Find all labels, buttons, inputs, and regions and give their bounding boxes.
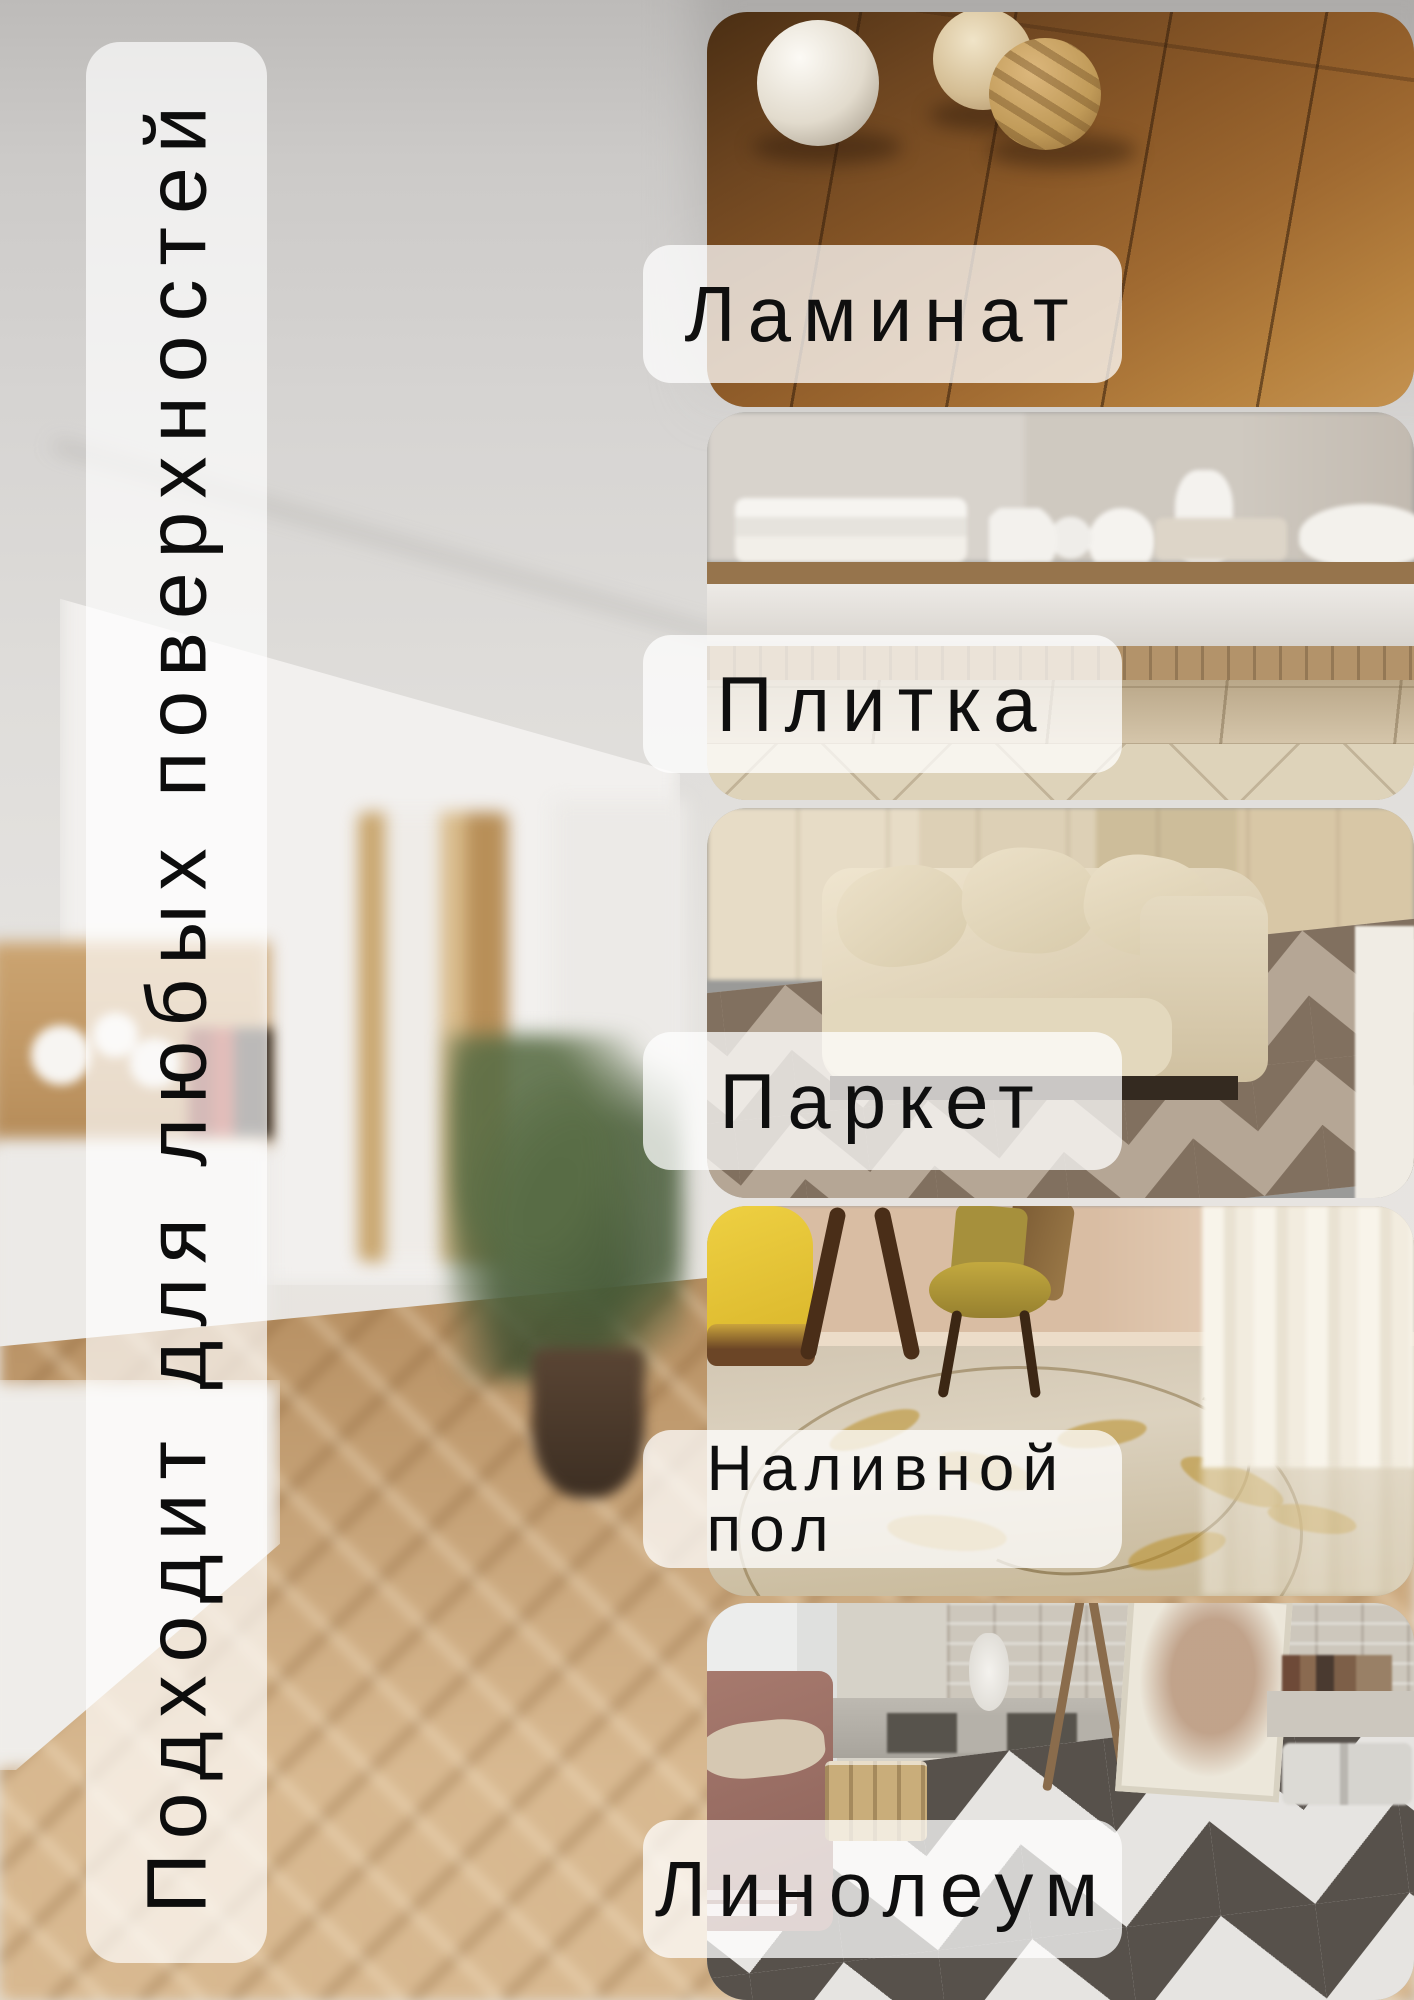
label-tile: Плитка [643,635,1122,773]
folded-towels [1155,518,1287,560]
sheer-curtain [1202,1206,1414,1468]
label-linoleum: Линолеум [643,1820,1122,1958]
headline-text: Подходит для любых поверхностей [128,92,225,1913]
banner-canvas: Подходит для любых поверхностей Ламинат … [0,0,1414,2000]
rattan-ball [989,38,1101,150]
label-linoleum-text: Линолеум [655,1852,1110,1926]
label-laminate: Ламинат [643,245,1122,383]
white-vase [969,1633,1009,1711]
label-parquet: Паркет [643,1032,1122,1170]
wooden-counter [707,562,1414,584]
label-self-leveling-floor: Наливной пол [643,1430,1122,1568]
white-cups [989,508,1159,562]
stacked-plates [735,498,967,562]
label-tile-text: Плитка [716,667,1048,741]
label-parquet-text: Паркет [719,1064,1045,1138]
chair-seat [929,1262,1051,1318]
label-laminate-text: Ламинат [684,277,1080,351]
label-self-leveling-floor-text: Наливной пол [707,1438,1059,1560]
background-plant-pot [532,1348,644,1498]
white-bowl [1299,504,1414,566]
white-carved-ball [757,20,879,146]
storage-boxes [1282,1743,1412,1805]
white-column [1355,926,1414,1198]
curtain-reflection [1202,1464,1414,1596]
armchair-wood-frame [707,1324,815,1366]
headline-panel: Подходит для любых поверхностей [86,42,267,1963]
right-shelf [1267,1691,1414,1737]
shelf-books [1282,1655,1392,1693]
